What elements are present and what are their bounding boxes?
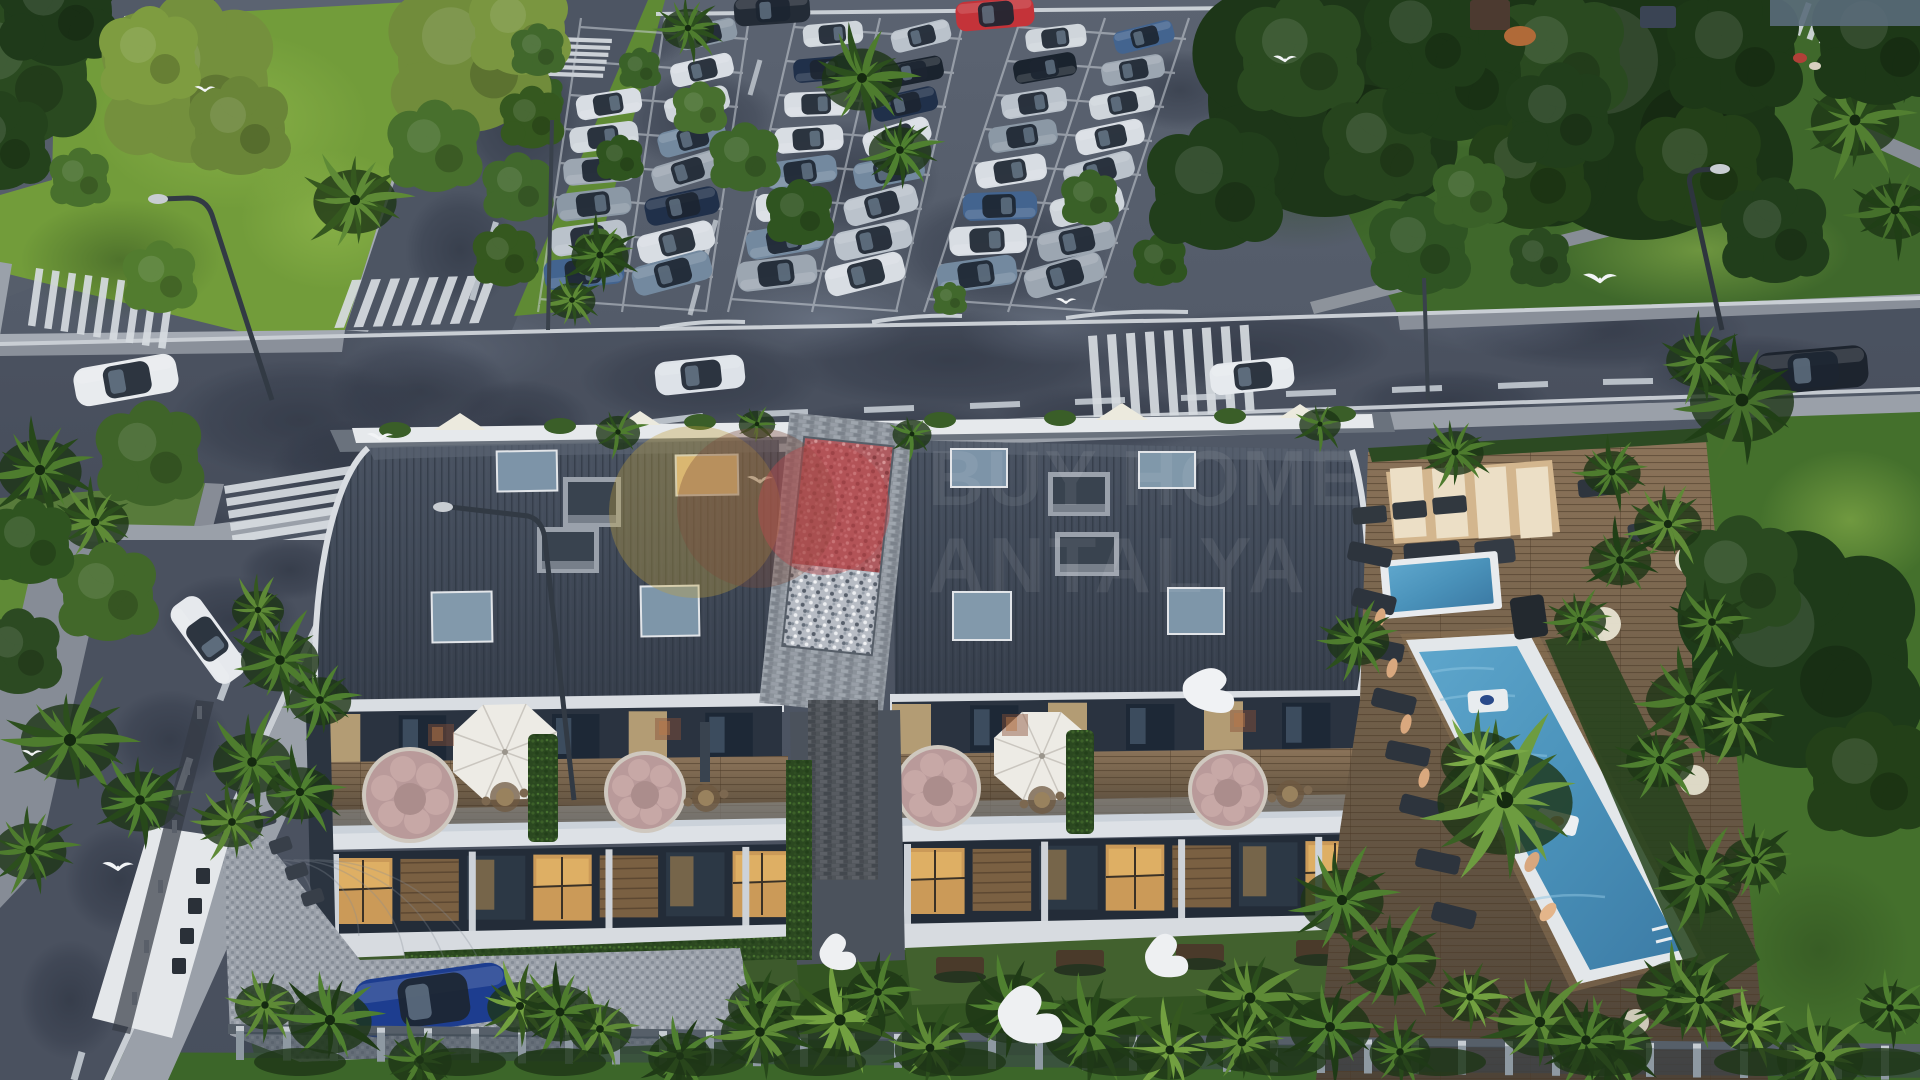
svg-text:ANTALYA: ANTALYA [928,521,1309,609]
svg-text:BUY HOME: BUY HOME [928,434,1363,522]
